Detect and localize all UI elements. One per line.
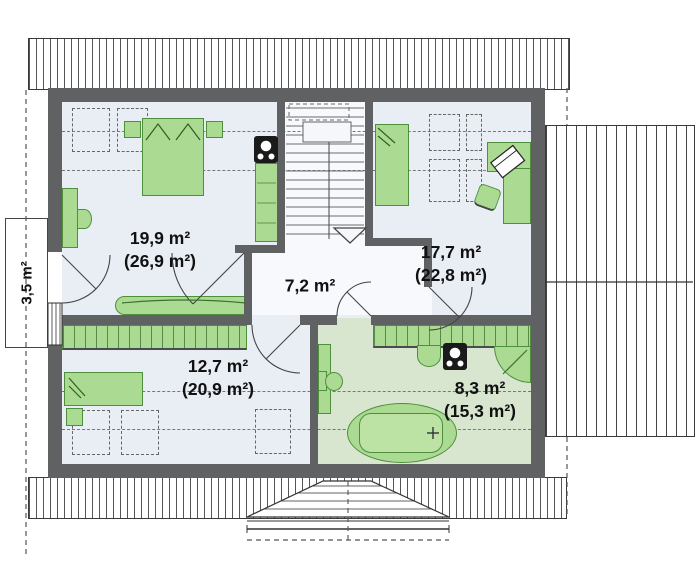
wall-bathroom-left <box>310 315 318 464</box>
toilet-bowl <box>325 372 343 391</box>
wardrobe-outline <box>466 114 482 151</box>
wardrobe-outline <box>255 409 291 454</box>
room-label-bathroom: 8,3 m² (15,3 m²) <box>444 377 516 423</box>
room-total-area: (15,3 m²) <box>444 400 516 423</box>
ceiling-height-line <box>62 170 531 171</box>
nightstand <box>206 121 223 138</box>
stairwell-floor <box>285 102 365 245</box>
wall-interior <box>244 245 252 325</box>
chair <box>77 209 92 229</box>
room-total-area: (22,8 m²) <box>415 264 487 287</box>
room-area: 12,7 m² <box>182 355 254 378</box>
wall-exterior-left <box>48 345 62 464</box>
bathtub-inner <box>359 413 443 453</box>
room-total-area: (26,9 m²) <box>124 250 196 273</box>
wall-stair-left <box>277 102 285 253</box>
single-bed <box>64 372 143 406</box>
wardrobe <box>62 325 247 350</box>
floor-plan: 19,9 m² (26,9 m²) 17,7 m² (22,8 m²) 7,2 … <box>0 0 700 574</box>
room-area: 17,7 m² <box>415 241 487 264</box>
wall-interior <box>235 245 285 253</box>
wardrobe-outline <box>72 108 110 152</box>
wall-stair-right <box>365 102 373 245</box>
room-label-bedroom-2: 17,7 m² (22,8 m²) <box>415 241 487 287</box>
wardrobe-outline <box>429 114 460 151</box>
room-label-bedroom-3: 12,7 m² (20,9 m²) <box>182 355 254 401</box>
room-label-bedroom-1: 19,9 m² (26,9 m²) <box>124 227 196 273</box>
room-label-balcony: 3,5 m² <box>19 261 36 304</box>
hall-floor <box>252 245 432 315</box>
tall-cabinet <box>255 163 278 242</box>
room-area: 8,3 m² <box>444 377 516 400</box>
wall-exterior-bottom <box>48 464 545 478</box>
room-total-area: (20,9 m²) <box>182 378 254 401</box>
wardrobe <box>373 325 531 348</box>
room-area: 19,9 m² <box>124 227 196 250</box>
wall-exterior-right <box>531 102 545 464</box>
single-bed <box>375 124 409 206</box>
roof-area-right <box>545 125 695 437</box>
desk <box>503 168 531 224</box>
roof-strip-top <box>28 38 570 90</box>
wall-interior <box>371 315 531 325</box>
wardrobe-outline <box>429 159 460 202</box>
wardrobe-outline <box>121 410 159 455</box>
wall-interior <box>300 315 337 325</box>
room-label-hall: 7,2 m² <box>285 275 336 298</box>
sofa <box>115 296 250 315</box>
double-bed <box>142 118 204 196</box>
balcony-door-opening <box>48 252 62 303</box>
wall-exterior-left <box>48 102 62 252</box>
room-area: 7,2 m² <box>285 275 336 298</box>
nightstand <box>124 121 141 138</box>
washbasin <box>417 345 441 367</box>
room-area: 3,5 m² <box>19 261 36 304</box>
dressing-table <box>62 188 78 248</box>
wall-interior <box>48 315 252 325</box>
roof-strip-bottom <box>28 477 567 519</box>
stool <box>66 408 83 426</box>
wall-exterior-top <box>48 88 545 102</box>
